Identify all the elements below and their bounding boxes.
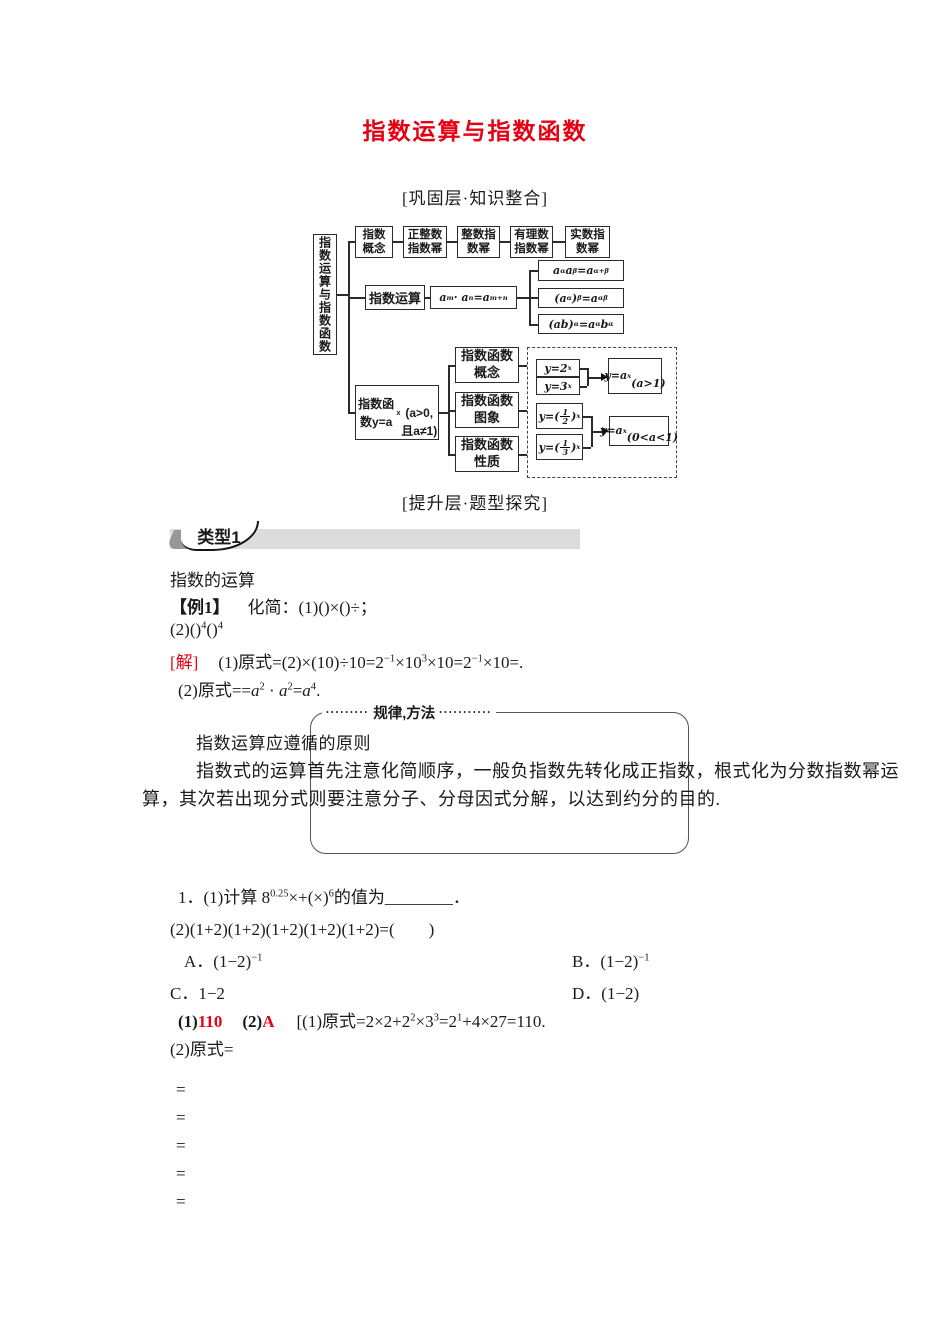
example-y-third-x: y=(13)x [536, 434, 583, 460]
method-heading: 指数运算应遵循的原则 [196, 729, 371, 754]
example-y3x: y=3x [536, 377, 580, 395]
rule-node-3: (ab)α=aαbα [538, 314, 624, 334]
connector-line [580, 368, 587, 370]
connector-line [348, 241, 355, 243]
rule-node-2: (aα)β=aαβ [538, 288, 624, 308]
example1-label: 【例1】 [170, 598, 230, 617]
connector-line [519, 454, 527, 456]
option-b: B．(1−2)−1 [572, 947, 649, 972]
page-title: 指数运算与指数函数 [0, 112, 950, 146]
connector-line [519, 410, 527, 412]
rule-node-1: aαaβ=aα+β [538, 260, 624, 281]
answer-num2: (2) [242, 1012, 262, 1031]
connector-line [580, 386, 587, 388]
connector-line [337, 294, 348, 296]
question2: (2)(1+2)(1+2)(1+2)(1+2)(1+2)=( ) [170, 915, 434, 940]
example-y2x: y=2x [536, 359, 580, 377]
section-label-consolidate: [巩固层·知识整合] [0, 184, 950, 209]
answer-value2: A [262, 1012, 274, 1031]
option-d: D．(1−2) [572, 979, 639, 1004]
method-body-line2: 算，其次若出现分式则要注意分子、分母因式分解，以达到约分的目的. [142, 785, 721, 811]
eq-line: = [176, 1136, 186, 1156]
connector-line [587, 377, 601, 379]
connector-line [439, 412, 448, 414]
dots-decoration: ••••••••••• [439, 708, 492, 717]
connector-line [500, 241, 510, 243]
result-a-gt1: y=ax(a>1) [608, 358, 662, 394]
solution-line1: [解](1)原式=(2)×(10)÷10=2−1×103×10=2−1×10=. [170, 648, 523, 673]
example1-line2: (2)()4()4 [170, 620, 223, 640]
question1: 1．(1)计算 80.25×+(×)6的值为________． [178, 883, 470, 908]
dots-decoration: ••••••••• [326, 708, 369, 717]
solution-line2: (2)原式==a2 · a2=a4. [178, 676, 320, 701]
connector-line [393, 241, 403, 243]
function-node: 指数函数y=ax(a>0,且a≠1) [355, 385, 439, 440]
connector-line [348, 241, 350, 412]
function-child-concept: 指数函数概念 [455, 347, 519, 383]
eq-line: = [176, 1164, 186, 1184]
connector-line [553, 241, 565, 243]
eq-line: = [176, 1108, 186, 1128]
answer-work: [(1)原式=2×2+22×33=21+4×27=110. [297, 1012, 546, 1031]
concept-map: 指数运算与指数函数 指数概念 正整数指数幂 整数指数幂 有理数指数幂 实数指数幂… [300, 222, 692, 484]
example1-intro: 化简：(1)()×()÷； [248, 598, 377, 617]
connector-line [519, 365, 527, 367]
solution-label: [解] [170, 653, 198, 672]
example-y-half-x: y=(12)x [536, 403, 583, 429]
operation-node: 指数运算 [365, 285, 425, 310]
answer-line: (1)110(2)A[(1)原式=2×2+22×33=21+4×27=110. [178, 1007, 546, 1032]
connector-line [348, 412, 355, 414]
chain-node-5: 实数指数幂 [565, 226, 610, 258]
answer-num1: (1) [178, 1012, 198, 1031]
method-box-title: ••••••••• 规律,方法 ••••••••••• [322, 703, 496, 721]
section-label-improve: [提升层·题型探究] [0, 489, 950, 514]
connector-line [448, 454, 455, 456]
chain-node-1: 指数概念 [355, 226, 393, 258]
answer-work2: (2)原式= [170, 1035, 233, 1060]
function-child-property: 指数函数性质 [455, 436, 519, 472]
eq-line: = [176, 1080, 186, 1100]
method-body-line1: 指数式的运算首先注意化简顺序，一般负指数先转化成正指数，根式化为分数指数幂运 [196, 757, 899, 783]
option-c: C．1−2 [170, 979, 225, 1004]
connector-line [448, 410, 455, 412]
diagram-root-node: 指数运算与指数函数 [313, 234, 337, 355]
chain-node-4: 有理数指数幂 [510, 226, 553, 258]
connector-line [583, 447, 591, 449]
function-child-graph: 指数函数图象 [455, 392, 519, 428]
chain-node-2: 正整数指数幂 [403, 226, 447, 258]
connector-line [448, 365, 455, 367]
method-title-text: 规律,方法 [373, 702, 435, 723]
connector-line [348, 297, 365, 299]
operation-formula-node: am · an=am+n [430, 286, 517, 309]
result-a-lt1: y=ax(0<a<1) [609, 416, 669, 446]
connector-line [583, 416, 591, 418]
type1-subtitle: 指数的运算 [170, 566, 255, 591]
chain-node-3: 整数指数幂 [457, 226, 500, 258]
eq-line: = [176, 1192, 186, 1212]
connector-line [529, 270, 538, 272]
connector-line [529, 324, 538, 326]
answer-value1: 110 [198, 1012, 223, 1031]
connector-line [447, 241, 457, 243]
connector-line [517, 297, 529, 299]
document-page: 指数运算与指数函数 [巩固层·知识整合] 指数运算与指数函数 指数概念 正整数指… [0, 0, 950, 1344]
example1-line1: 【例1】化简：(1)()×()÷； [170, 593, 377, 618]
option-a: A．(1−2)−1 [184, 947, 262, 972]
connector-line [529, 297, 538, 299]
solution-step1: (1)原式=(2)×(10)÷10=2−1×103×10=2−1×10=. [218, 653, 523, 672]
